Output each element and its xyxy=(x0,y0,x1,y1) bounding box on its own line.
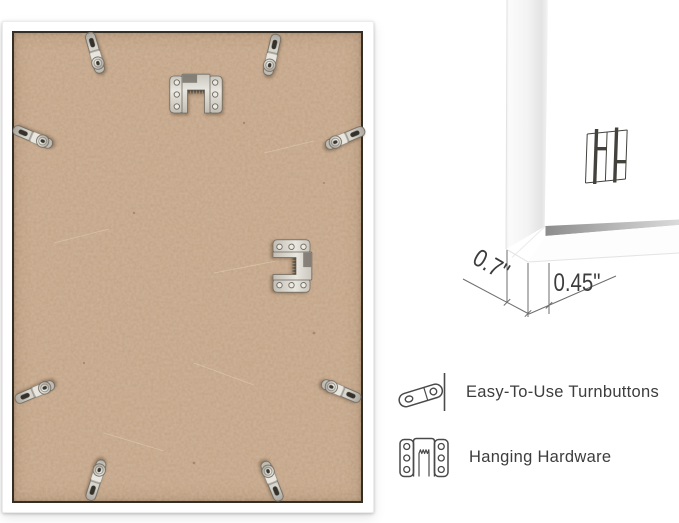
turnbutton xyxy=(81,30,109,77)
turnbutton xyxy=(12,376,59,408)
product-infographic: 0.7" 0.45" xyxy=(0,0,679,523)
feature-row-hanging-hardware: Hanging Hardware xyxy=(396,436,676,478)
sawtooth-hanger xyxy=(271,239,313,293)
mdf-backing xyxy=(12,31,363,503)
sawtooth-hanger xyxy=(169,73,223,115)
feature-list: Easy-To-Use Turnbuttons Hangin xyxy=(396,370,676,500)
feature-row-turnbuttons: Easy-To-Use Turnbuttons xyxy=(396,370,676,414)
hh-monogram-logo xyxy=(585,128,627,185)
turnbutton-icon xyxy=(396,370,451,414)
frame-profile-view: 0.7" 0.45" xyxy=(380,0,679,340)
turnbutton xyxy=(318,375,365,407)
hanging-hardware-icon xyxy=(399,436,449,478)
frame-back-panel xyxy=(2,21,374,513)
feature-label-hanging-hardware: Hanging Hardware xyxy=(469,448,611,467)
turnbutton xyxy=(256,458,287,505)
turnbutton xyxy=(259,32,284,78)
turnbutton xyxy=(82,457,111,504)
feature-label-turnbuttons: Easy-To-Use Turnbuttons xyxy=(466,383,659,402)
face-width-dimension-label: 0.45" xyxy=(554,269,601,297)
frame-side-rail xyxy=(506,0,549,258)
turnbutton xyxy=(322,122,369,154)
turnbutton xyxy=(10,121,57,153)
